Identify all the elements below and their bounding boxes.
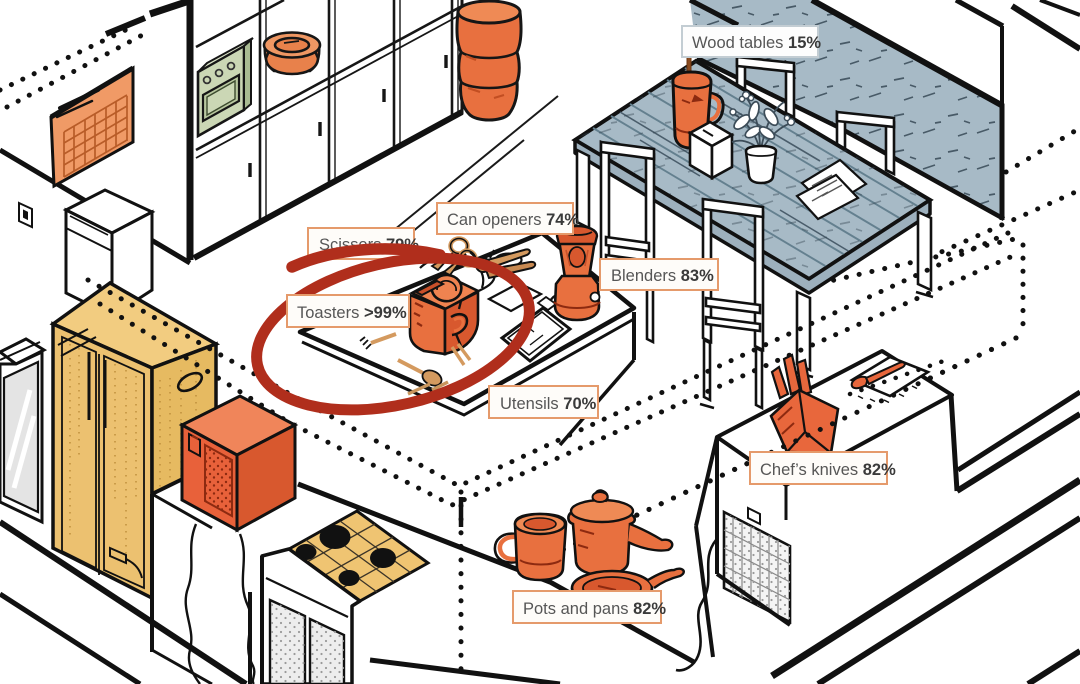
- svg-text:Toasters >99%: Toasters >99%: [297, 304, 407, 322]
- svg-text:Blenders 83%: Blenders 83%: [611, 267, 714, 285]
- svg-text:Wood tables 15%: Wood tables 15%: [692, 34, 821, 52]
- svg-text:Pots and pans 82%: Pots and pans 82%: [523, 600, 666, 618]
- svg-text:Can openers 74%: Can openers 74%: [447, 211, 579, 229]
- svg-text:Utensils 70%: Utensils 70%: [500, 395, 597, 413]
- svg-text:Chef’s knives 82%: Chef’s knives 82%: [760, 461, 896, 479]
